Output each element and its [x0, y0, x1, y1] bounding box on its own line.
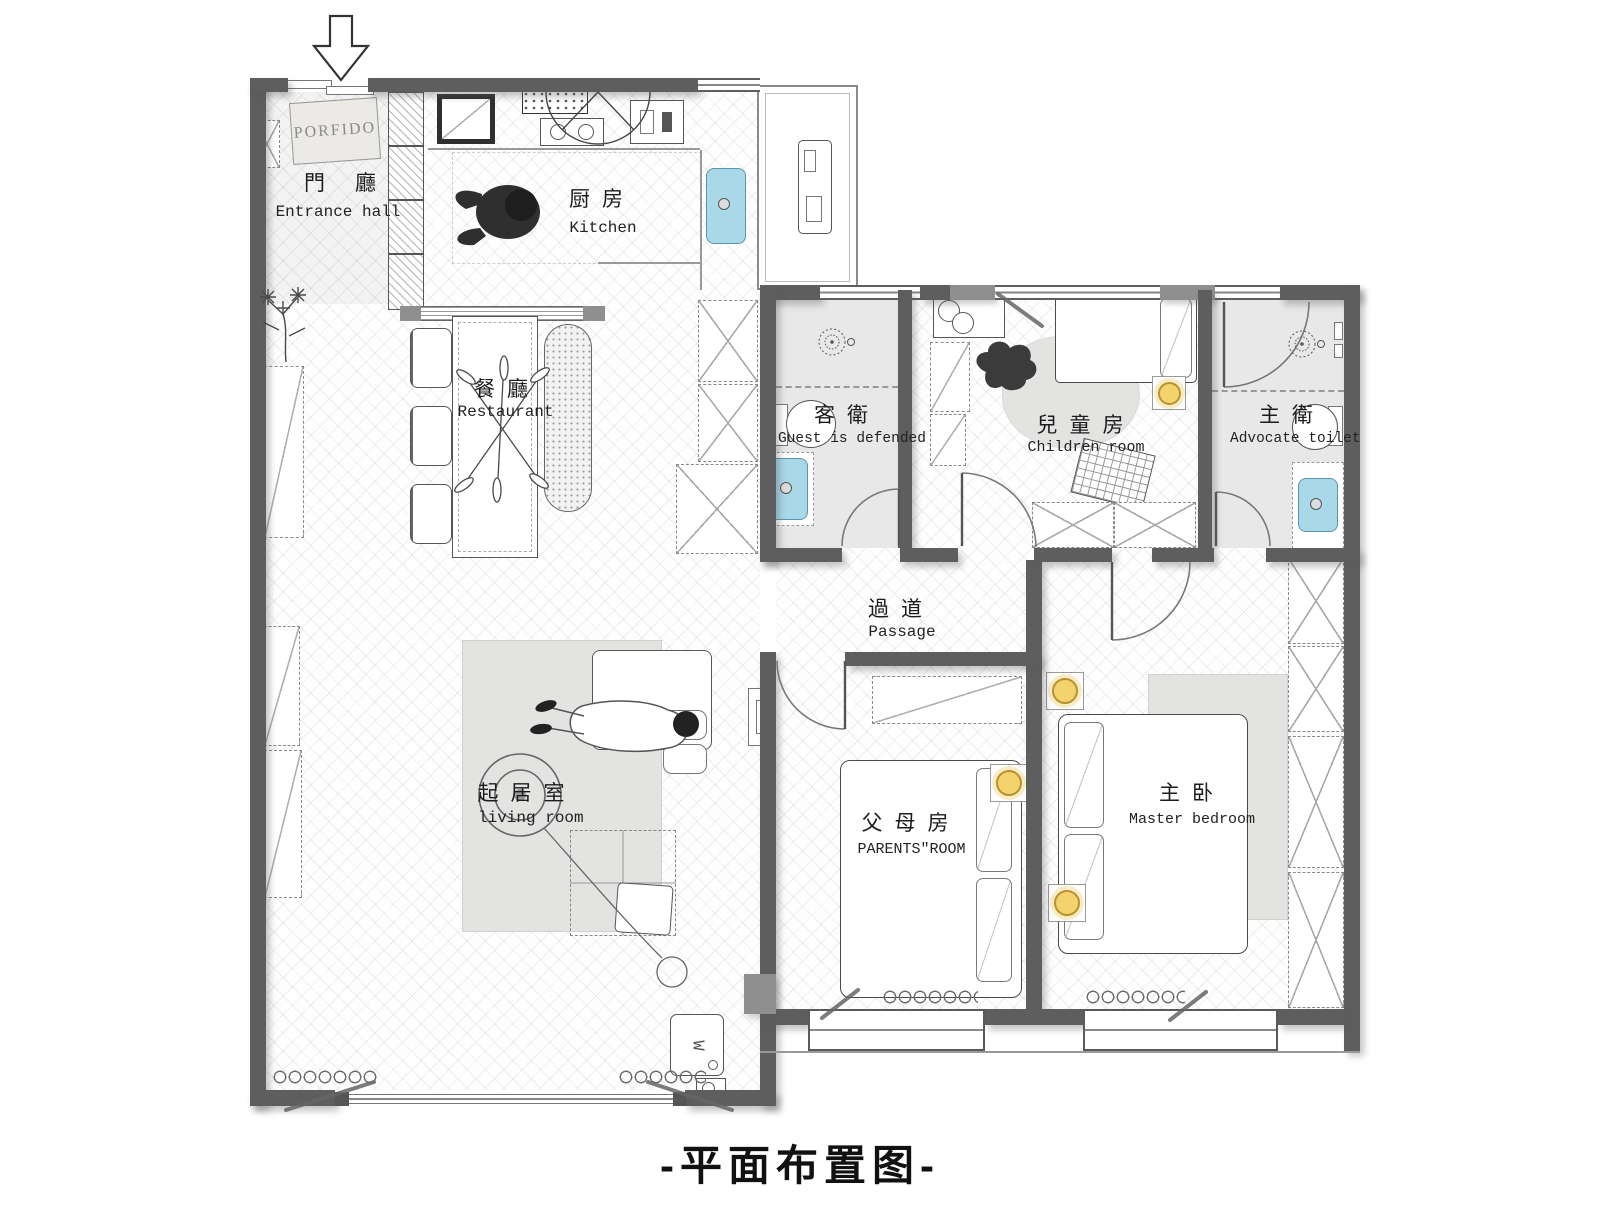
sideboard-end	[400, 306, 421, 321]
room-label-master-bedroom-cn: 主卧	[1142, 782, 1242, 805]
wall	[250, 78, 288, 92]
doormat-label: PORFIDO	[293, 119, 377, 143]
entrance-arrow-icon	[314, 16, 368, 80]
wall-cabinet	[264, 626, 300, 746]
floor-plan-canvas: PORFIDO W	[0, 0, 1600, 1228]
washer-knob	[708, 1060, 718, 1070]
room-label-passage-cn: 過道	[856, 598, 946, 621]
window-sill-line	[760, 1051, 1360, 1053]
room-label-kitchen-en: Kitchen	[558, 220, 648, 238]
room-label-parents-cn: 父母房	[856, 812, 966, 835]
curtain	[882, 988, 978, 1006]
appliance-cup	[640, 110, 654, 134]
parents-pillow	[976, 878, 1012, 982]
wall	[920, 285, 952, 300]
wall	[250, 1090, 335, 1106]
wall-pier	[950, 285, 995, 300]
wall	[845, 652, 1040, 666]
wall-cabinet	[264, 366, 304, 538]
dining-table-inner	[458, 322, 532, 552]
master-wardrobe	[1288, 872, 1344, 1008]
sofa-cushion	[663, 744, 707, 774]
room-label-entrance-en: Entrance hall	[258, 204, 418, 222]
corner-pantry	[676, 464, 758, 554]
children-wardrobe	[1032, 502, 1114, 548]
master-wardrobe	[1288, 736, 1344, 868]
desk-chair	[952, 312, 974, 334]
dining-chair	[410, 406, 452, 466]
curtain	[1085, 988, 1185, 1006]
washer-label: W	[687, 1040, 706, 1050]
room-label-parents-en: PARENTS"ROOM	[844, 842, 979, 859]
downlight-bulb	[1052, 678, 1078, 704]
page-title: -平面布置图-	[580, 1132, 1020, 1196]
window	[698, 78, 760, 92]
room-label-restaurant-cn: 餐廳	[462, 378, 552, 401]
room-label-living-en: living room	[478, 810, 576, 828]
wall	[1266, 548, 1360, 562]
window	[808, 1009, 985, 1051]
wall	[1152, 548, 1214, 562]
room-label-passage-en: Passage	[864, 624, 940, 642]
children-shelf	[930, 342, 970, 412]
slider-end	[335, 1092, 349, 1106]
wall	[1278, 1009, 1344, 1025]
room-label-master-bath-cn: 主衛	[1242, 404, 1342, 427]
appliance-bottle	[662, 112, 672, 132]
room-label-living-cn: 起居室	[472, 782, 582, 805]
shower-fixture	[1334, 344, 1343, 358]
wall	[760, 285, 776, 562]
sofa-cushion	[663, 710, 707, 740]
wall-pier	[744, 974, 776, 1014]
sliding-window	[335, 1094, 687, 1104]
dining-chair	[410, 484, 452, 544]
downlight-bulb	[996, 770, 1022, 796]
wall	[685, 1090, 776, 1106]
sideboard-end	[583, 306, 605, 321]
tall-cabinet	[698, 384, 758, 462]
shoe-cabinet	[388, 92, 424, 146]
wall	[368, 78, 698, 92]
downlight-bulb	[1158, 382, 1181, 405]
downlight-bulb	[1054, 890, 1080, 916]
downlight	[1048, 884, 1086, 922]
wall	[900, 548, 958, 562]
range-hood-grill	[522, 90, 588, 114]
master-pillow	[1064, 722, 1104, 828]
counter-edge	[598, 262, 700, 264]
shower-partition	[1212, 390, 1344, 392]
window	[1215, 285, 1280, 300]
guest-bath-faucet	[780, 482, 792, 494]
water-heater-panel	[804, 150, 816, 172]
tall-cabinet	[698, 300, 758, 382]
room-label-guest-bath-cn: 客衛	[792, 404, 902, 427]
room-label-master-bath-en: Advocate toilet	[1230, 432, 1352, 448]
children-shelf	[930, 414, 966, 466]
master-bath-faucet	[1310, 498, 1322, 510]
wall	[1344, 285, 1360, 1051]
entrance-sliding-door	[326, 86, 374, 95]
wall	[250, 78, 266, 1106]
stove-burner	[578, 124, 594, 140]
room-label-guest-bath-en: Guest is defended	[778, 432, 918, 448]
small-appliance	[630, 100, 684, 144]
wall	[985, 1009, 1083, 1025]
doormat: PORFIDO	[289, 97, 381, 165]
water-heater-panel	[806, 196, 822, 222]
kitchen-window	[437, 94, 495, 144]
room-label-master-bedroom-en: Master bedroom	[1128, 812, 1256, 829]
room-label-restaurant-en: Restaurant	[448, 404, 563, 422]
downlight	[1152, 376, 1186, 410]
wall-cabinet	[264, 750, 302, 898]
wall	[1198, 290, 1212, 548]
master-wardrobe	[1288, 558, 1344, 644]
counter-edge	[700, 150, 702, 290]
counter-edge	[428, 148, 700, 150]
slider-end	[673, 1092, 687, 1106]
curtain	[272, 1068, 377, 1086]
shoe-cabinet	[388, 254, 424, 310]
kitchen-faucet	[718, 198, 730, 210]
parents-cabinet	[872, 676, 1022, 724]
room-label-entrance-cn: 門廳	[290, 172, 420, 195]
curtain	[618, 1068, 706, 1086]
master-wardrobe	[1288, 646, 1344, 732]
window	[1050, 285, 1160, 300]
stove-burner	[550, 124, 566, 140]
wall	[760, 652, 776, 1106]
room-label-children-en: Children room	[1026, 440, 1146, 457]
room-label-children-cn: 兒童房	[1026, 414, 1146, 437]
wall	[1034, 548, 1112, 562]
wall	[760, 548, 842, 562]
shower-partition	[776, 386, 898, 388]
window	[995, 285, 1050, 300]
ottoman	[614, 882, 673, 936]
shower-fixture	[1334, 322, 1343, 340]
downlight	[1046, 672, 1084, 710]
dining-chair	[410, 328, 452, 388]
children-wardrobe	[1114, 502, 1196, 548]
room-label-kitchen-cn: 厨房	[552, 188, 652, 211]
wall	[1026, 560, 1042, 1010]
window	[1083, 1009, 1278, 1051]
children-pillow	[1160, 298, 1192, 378]
downlight	[990, 764, 1028, 802]
